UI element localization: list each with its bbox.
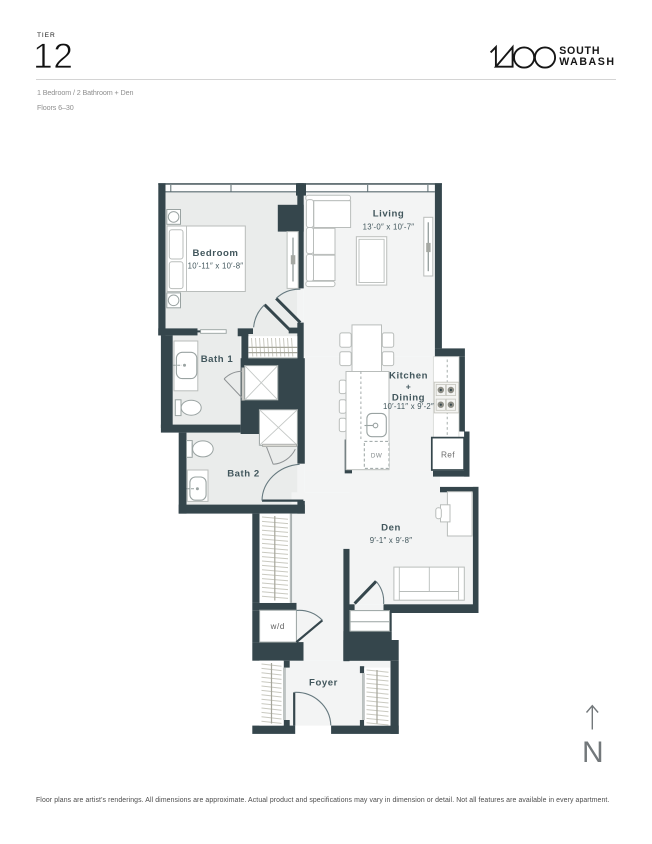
svg-text:9′-1″ x 9′-8″: 9′-1″ x 9′-8″ (370, 536, 412, 545)
svg-text:Den: Den (381, 523, 401, 534)
svg-text:Bath 2: Bath 2 (227, 469, 260, 480)
svg-text:Bedroom: Bedroom (193, 248, 239, 259)
svg-text:+: + (406, 382, 412, 392)
svg-text:Ref: Ref (441, 450, 455, 460)
svg-text:Foyer: Foyer (309, 678, 338, 689)
svg-text:Living: Living (373, 209, 405, 220)
svg-text:Bath 1: Bath 1 (201, 354, 234, 365)
svg-text:13′-0″ x 10′-7″: 13′-0″ x 10′-7″ (363, 222, 415, 231)
svg-text:10′-11″ x 10′-8″: 10′-11″ x 10′-8″ (188, 261, 244, 270)
svg-text:Kitchen: Kitchen (389, 370, 428, 381)
svg-text:w/d: w/d (270, 622, 285, 631)
svg-text:10′-11″ x 9′-2″: 10′-11″ x 9′-2″ (383, 402, 434, 411)
svg-text:DW: DW (371, 453, 383, 460)
